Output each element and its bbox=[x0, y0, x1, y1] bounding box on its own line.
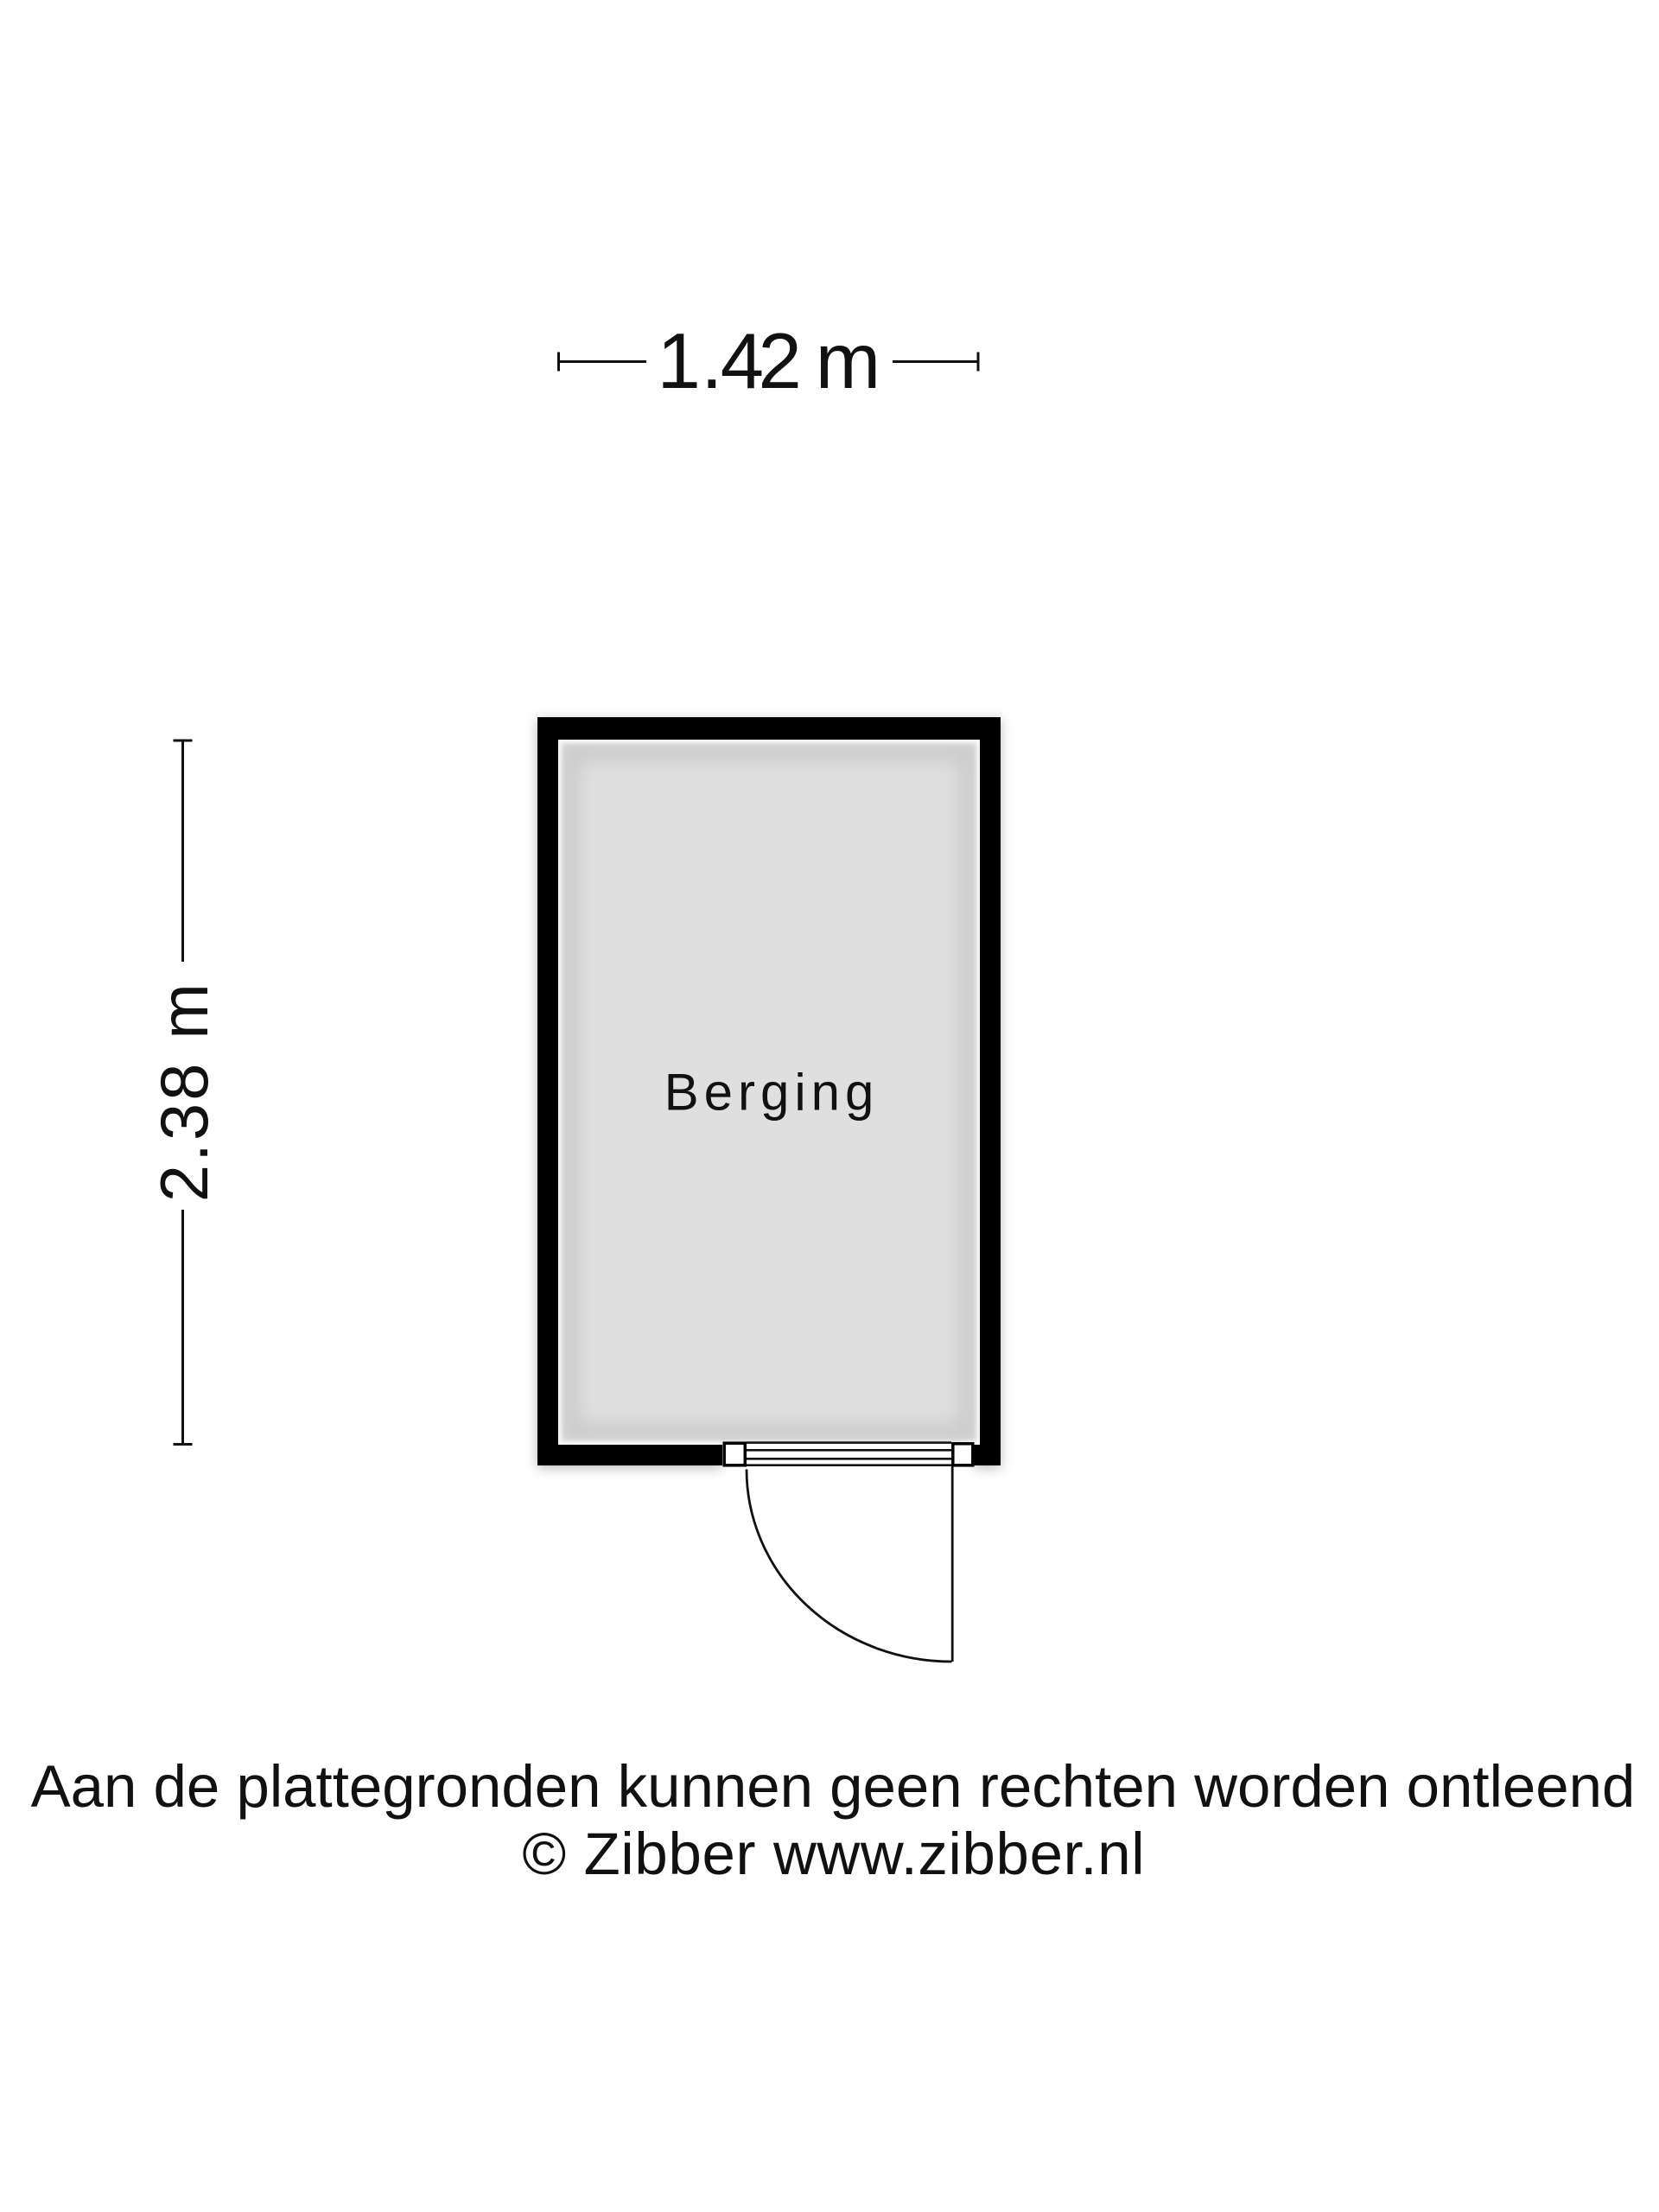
svg-text:Aan de plattegronden kunnen ge: Aan de plattegronden kunnen geen rechten… bbox=[31, 1753, 1636, 1820]
svg-text:Berging: Berging bbox=[664, 1064, 880, 1122]
svg-text:© Zibber www.zibber.nl: © Zibber www.zibber.nl bbox=[522, 1821, 1145, 1887]
svg-text:2.38 m: 2.38 m bbox=[148, 981, 222, 1202]
svg-text:1.42 m: 1.42 m bbox=[658, 318, 881, 405]
